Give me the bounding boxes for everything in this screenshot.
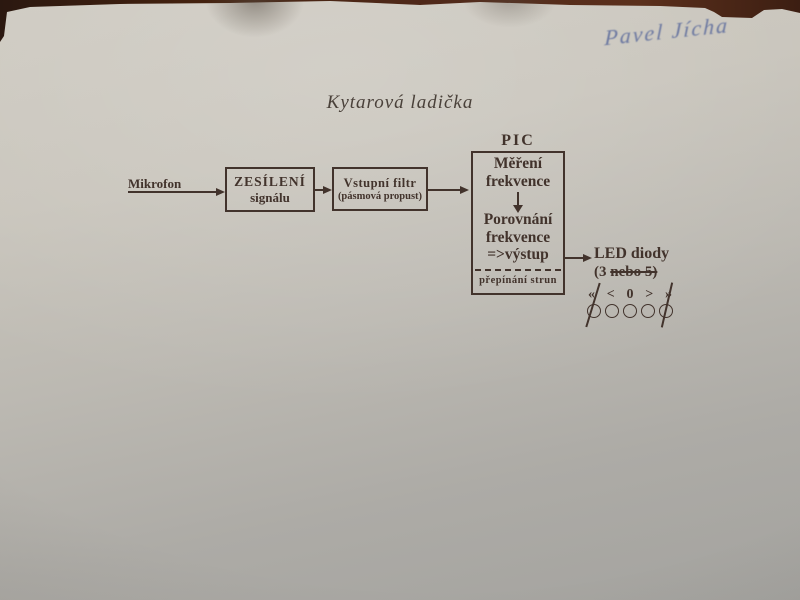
arrow-line-pic-to-led <box>565 257 585 259</box>
pic-measure-line1: Měření <box>473 155 563 173</box>
led-circles-row <box>587 304 673 318</box>
led-circle <box>641 304 655 318</box>
led-direction-symbols: « < 0 > » <box>588 287 672 303</box>
input-filter-line2: (pásmová propust) <box>338 191 422 202</box>
led-label: LED diody (3 nebo 5) <box>594 244 669 282</box>
microphone-label: Mikrofon <box>128 176 181 192</box>
arrow-line-filter-to-pic <box>428 189 462 191</box>
led-label-line1: LED diody <box>594 244 669 263</box>
arrowhead-right-icon <box>323 186 332 194</box>
amplifier-block-line1: ZESÍLENÍ <box>234 174 306 190</box>
amplifier-block-line2: signálu <box>250 190 290 206</box>
pic-compare-line3: =>výstup <box>473 246 563 264</box>
diagram-title: Kytarová ladička <box>300 92 500 114</box>
pic-block: Měření frekvence Porovnání frekvence =>v… <box>471 151 565 295</box>
arrow-line-mikrofon-to-amp <box>128 191 218 193</box>
pic-compare-line1: Porovnání <box>473 211 563 229</box>
diagram-content: Pavel Jícha Kytarová ladička Mikrofon ZE… <box>0 0 800 600</box>
symbol-left: < <box>607 287 615 303</box>
arrowhead-right-icon <box>460 186 469 194</box>
amplifier-block: ZESÍLENÍ signálu <box>225 167 315 212</box>
symbol-center: 0 <box>626 287 633 303</box>
led-circle <box>623 304 637 318</box>
pic-string-switch-label: přepínání strun <box>473 275 563 286</box>
input-filter-block: Vstupní filtr (pásmová propust) <box>332 167 428 211</box>
handwritten-author-name: Pavel Jícha <box>604 6 784 51</box>
input-filter-line1: Vstupní filtr <box>344 176 417 191</box>
pic-compare-step: Porovnání frekvence =>výstup <box>473 211 563 264</box>
led-circle <box>605 304 619 318</box>
pic-label: PIC <box>471 132 565 150</box>
pic-measure-step: Měření frekvence <box>473 155 563 190</box>
photo-of-paper-diagram: Pavel Jícha Kytarová ladička Mikrofon ZE… <box>0 0 800 600</box>
symbol-right: > <box>645 287 653 303</box>
dashed-divider <box>475 269 561 271</box>
pic-measure-line2: frekvence <box>473 173 563 191</box>
struck-out-text: nebo 5) <box>610 264 657 280</box>
pic-compare-line2: frekvence <box>473 229 563 247</box>
led-label-line2: (3 nebo 5) <box>594 263 669 282</box>
arrowhead-right-icon <box>216 188 225 196</box>
arrowhead-right-icon <box>583 254 592 262</box>
